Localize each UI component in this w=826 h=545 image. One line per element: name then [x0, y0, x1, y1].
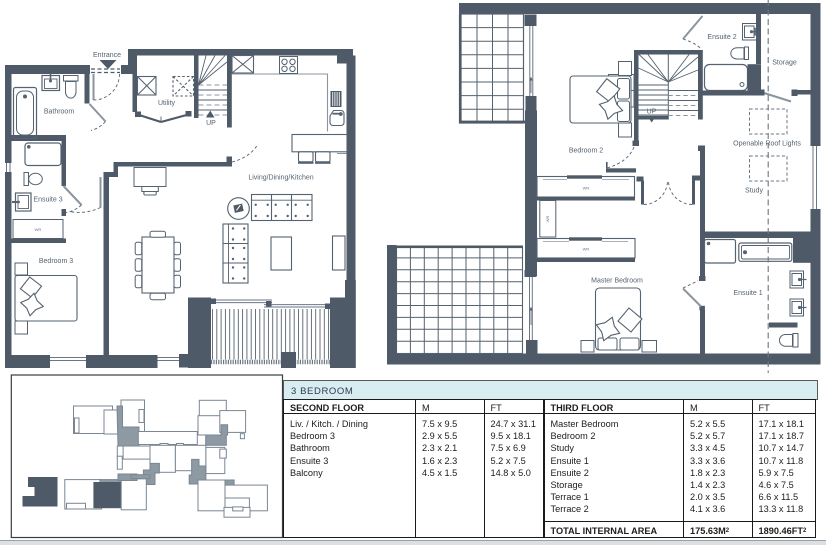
svg-text:Storage: Storage: [772, 60, 797, 67]
svg-text:UP: UP: [206, 120, 216, 127]
svg-text:Bedroom 3: Bedroom 3: [39, 258, 73, 265]
svg-text:Master Bedroom: Master Bedroom: [591, 278, 643, 285]
svg-text:WR: WR: [583, 247, 590, 252]
svg-text:Study: Study: [745, 188, 763, 195]
svg-text:WR: WR: [35, 227, 42, 232]
svg-text:WR: WR: [545, 216, 550, 223]
svg-text:Ensuite 3: Ensuite 3: [33, 197, 62, 204]
svg-text:Bathroom: Bathroom: [44, 109, 75, 116]
svg-text:WR: WR: [583, 186, 590, 191]
svg-text:Ensuite 2: Ensuite 2: [707, 34, 736, 41]
svg-text:UP: UP: [647, 109, 657, 116]
svg-text:Living/Dining/Kitchen: Living/Dining/Kitchen: [248, 175, 313, 182]
svg-text:Openable Roof Lights: Openable Roof Lights: [733, 141, 801, 148]
svg-text:Utility: Utility: [158, 100, 176, 107]
svg-text:Ensuite 1: Ensuite 1: [733, 290, 762, 297]
svg-text:Bedroom 2: Bedroom 2: [569, 148, 603, 155]
svg-text:Entrance: Entrance: [93, 52, 121, 59]
